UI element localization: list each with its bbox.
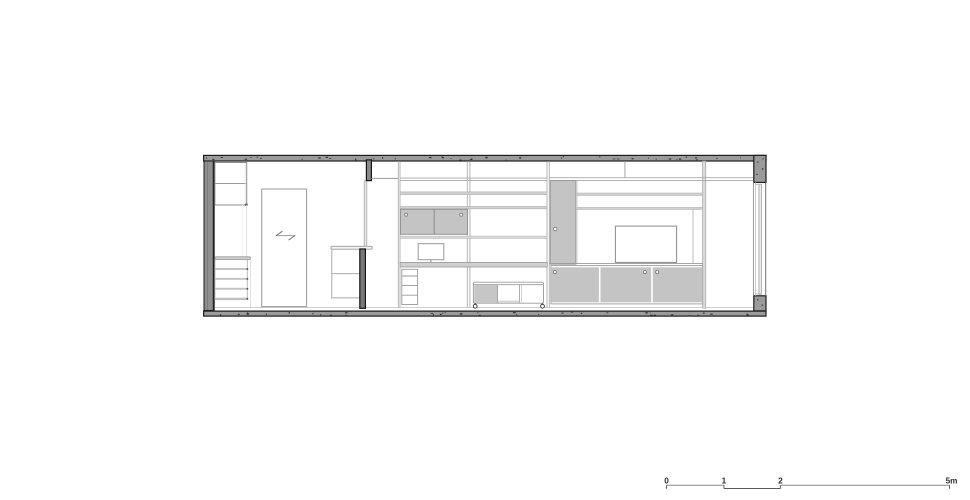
svg-text:5m: 5m <box>946 477 958 486</box>
svg-text:0: 0 <box>664 477 669 486</box>
svg-text:2: 2 <box>778 477 783 486</box>
svg-text:1: 1 <box>722 477 727 486</box>
